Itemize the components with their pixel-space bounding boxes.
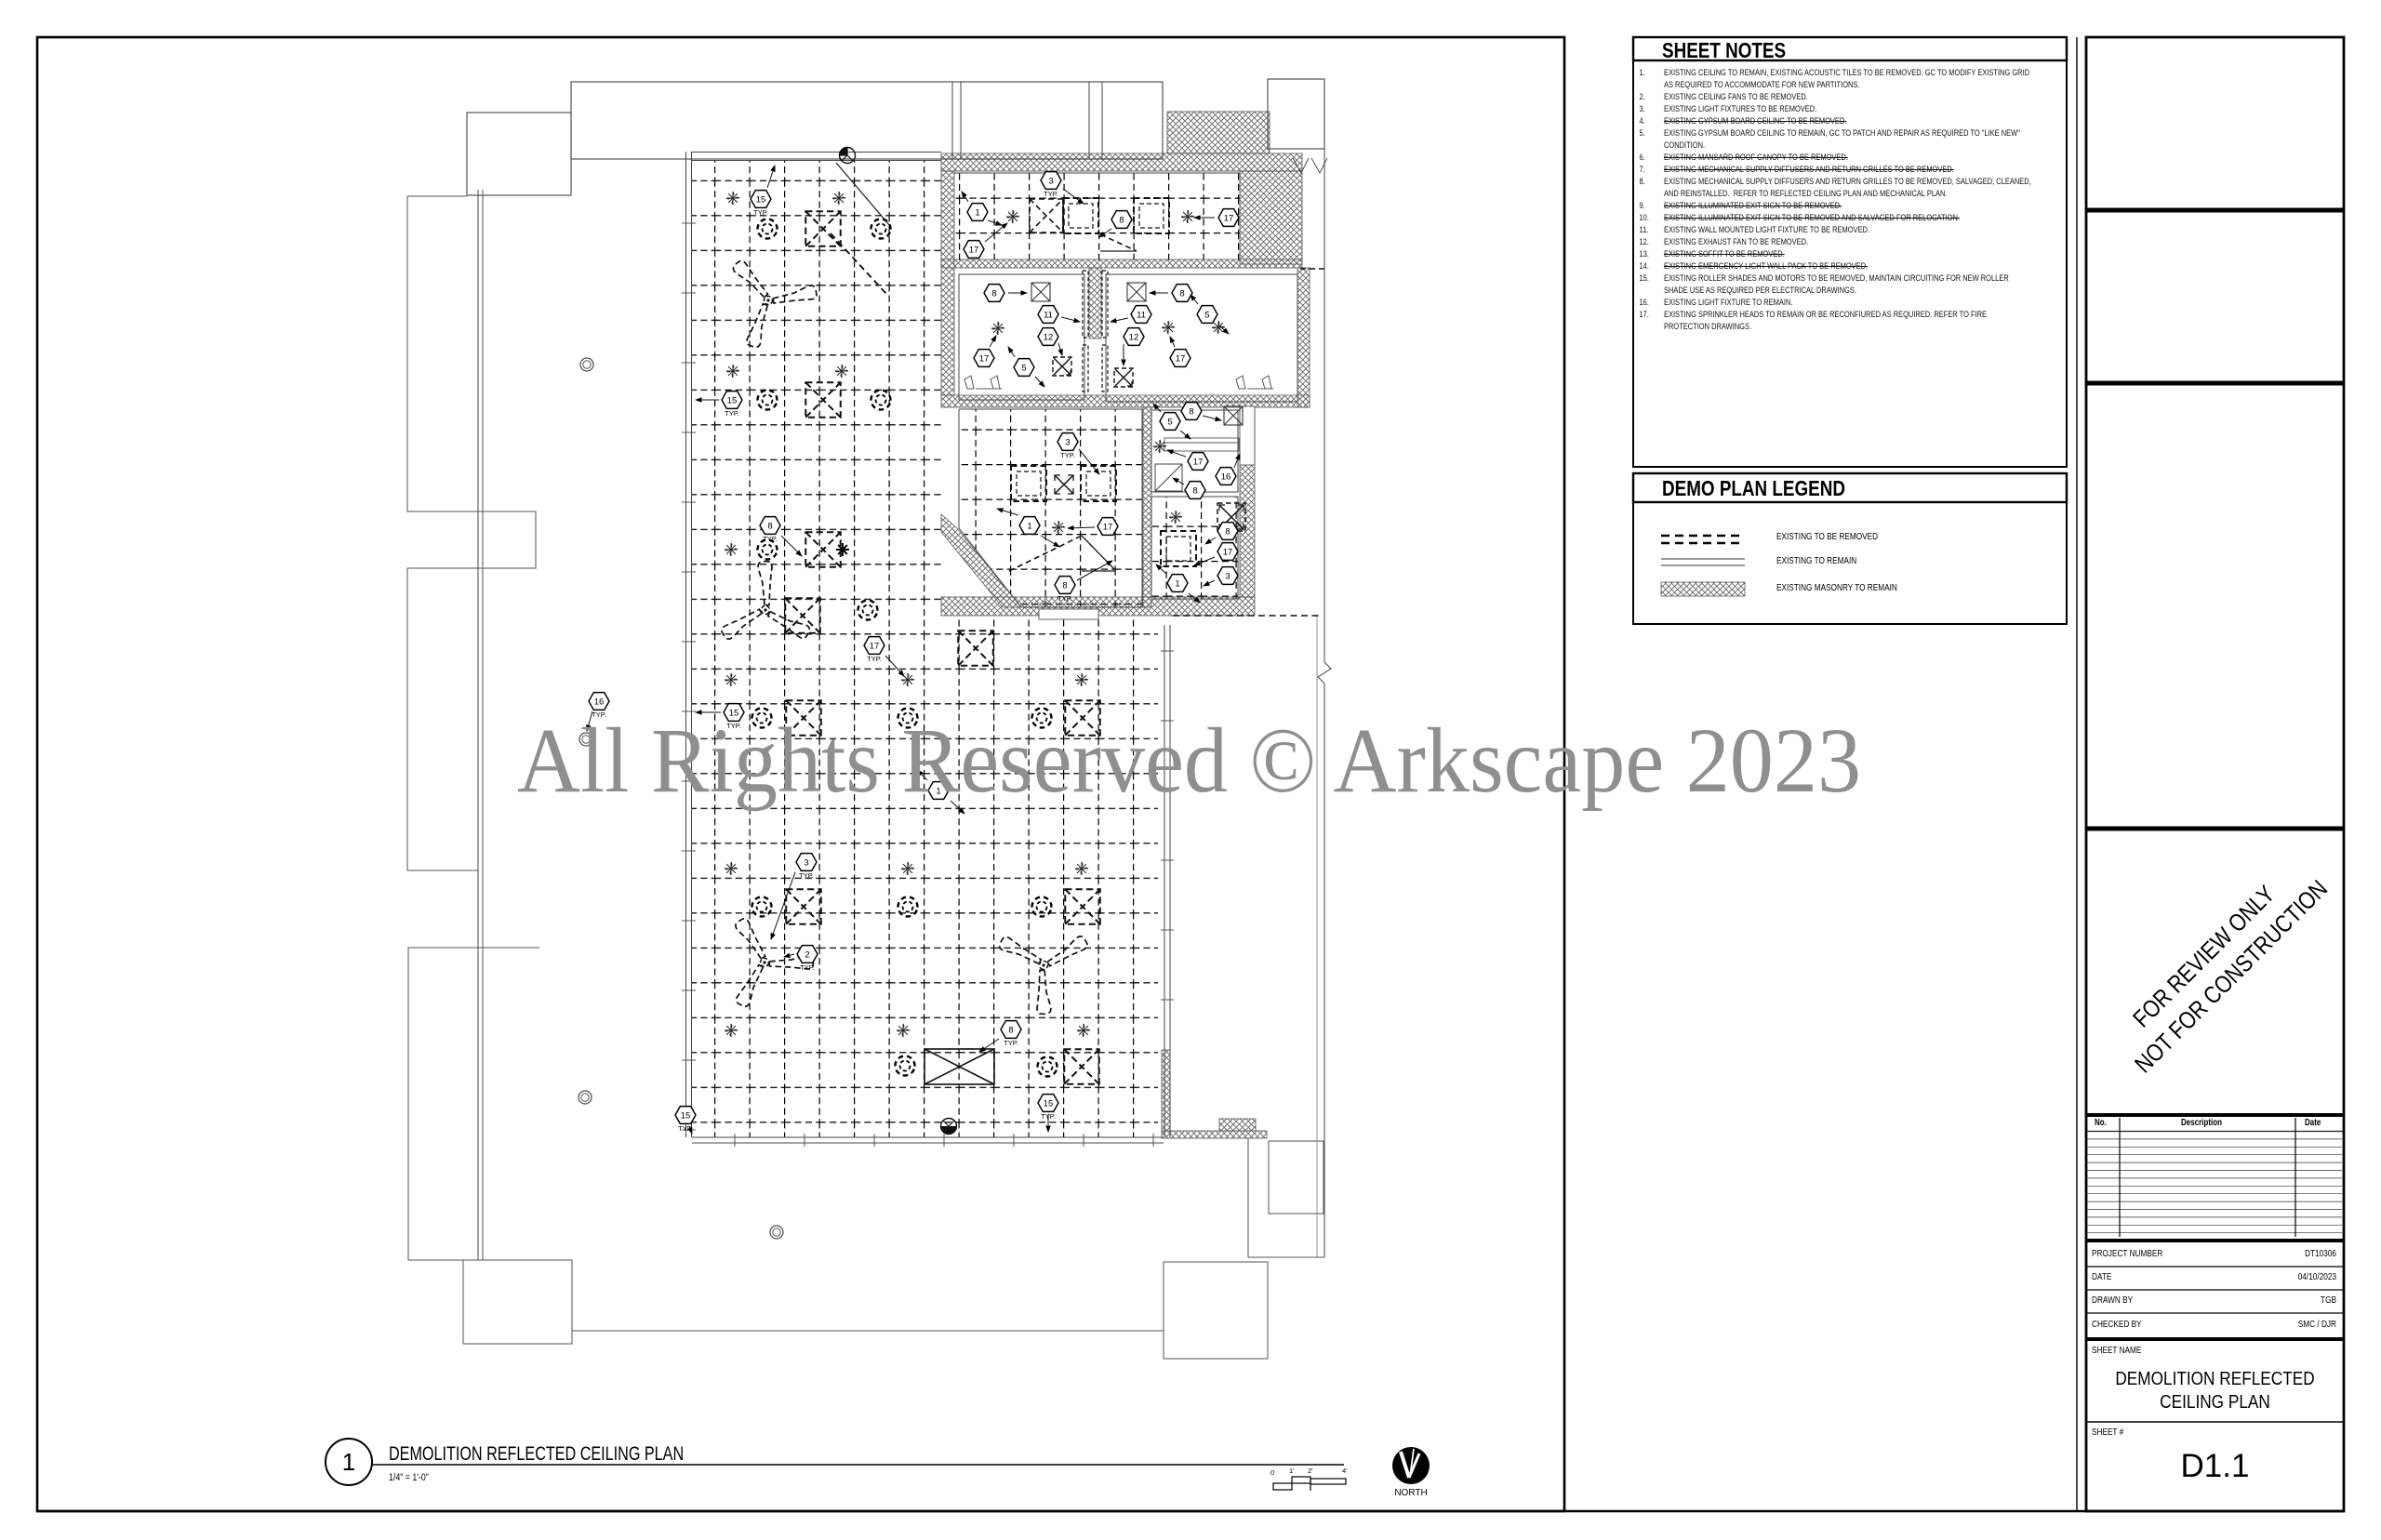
svg-text:8: 8: [1225, 526, 1230, 537]
svg-text:3: 3: [1225, 571, 1230, 581]
svg-text:1: 1: [342, 1448, 355, 1476]
svg-text:TYP.: TYP.: [1060, 451, 1075, 459]
svg-text:17: 17: [870, 641, 880, 651]
svg-text:17: 17: [1103, 522, 1113, 532]
svg-text:8: 8: [767, 521, 772, 531]
svg-text:TYP.: TYP.: [800, 963, 815, 972]
svg-text:4': 4': [1342, 1467, 1348, 1475]
svg-text:17: 17: [1176, 353, 1186, 364]
svg-text:TYP.: TYP.: [1044, 190, 1058, 198]
svg-text:11: 11: [1044, 310, 1053, 320]
svg-text:8: 8: [1179, 288, 1184, 299]
svg-text:15: 15: [756, 194, 766, 205]
svg-text:12: 12: [1044, 332, 1054, 342]
svg-text:8: 8: [1119, 215, 1124, 225]
svg-text:TYP.: TYP.: [678, 1124, 693, 1133]
svg-text:0: 0: [1270, 1468, 1274, 1477]
svg-text:5: 5: [1204, 310, 1209, 320]
svg-text:TYP.: TYP.: [867, 655, 882, 663]
svg-text:15: 15: [1044, 1098, 1054, 1109]
svg-text:TYP.: TYP.: [725, 409, 739, 418]
svg-text:15: 15: [681, 1110, 691, 1121]
svg-text:2': 2': [1308, 1467, 1313, 1475]
svg-text:11: 11: [1137, 310, 1146, 320]
svg-text:12: 12: [1129, 332, 1139, 342]
svg-text:5: 5: [1021, 363, 1026, 373]
svg-text:17: 17: [1193, 457, 1204, 467]
svg-text:8: 8: [1192, 485, 1197, 496]
svg-text:TYP.: TYP.: [753, 208, 768, 217]
svg-text:17: 17: [1224, 213, 1234, 223]
svg-text:16: 16: [1221, 471, 1231, 482]
svg-text:1': 1': [1289, 1467, 1295, 1475]
svg-text:NORTH: NORTH: [1394, 1488, 1427, 1498]
svg-text:2: 2: [805, 949, 809, 960]
svg-text:3: 3: [1065, 437, 1070, 447]
svg-text:1: 1: [1027, 521, 1031, 531]
svg-text:3: 3: [1048, 176, 1053, 186]
svg-text:5: 5: [1167, 417, 1172, 427]
svg-text:3: 3: [804, 857, 808, 868]
svg-text:TYP.: TYP.: [1004, 1039, 1018, 1047]
svg-text:1: 1: [1175, 578, 1179, 589]
svg-text:1: 1: [975, 207, 979, 218]
svg-text:16: 16: [594, 697, 605, 707]
svg-text:TYP.: TYP.: [763, 535, 778, 543]
svg-text:8: 8: [1062, 580, 1067, 591]
svg-text:8: 8: [991, 288, 996, 299]
svg-text:TYP.: TYP.: [799, 871, 814, 880]
svg-text:TYP.: TYP.: [1057, 594, 1072, 603]
svg-text:17: 17: [979, 353, 990, 364]
svg-text:8: 8: [1189, 406, 1193, 417]
svg-text:8: 8: [1008, 1025, 1013, 1035]
svg-text:17: 17: [1223, 547, 1233, 557]
svg-text:15: 15: [727, 395, 738, 405]
svg-text:17: 17: [969, 245, 979, 255]
